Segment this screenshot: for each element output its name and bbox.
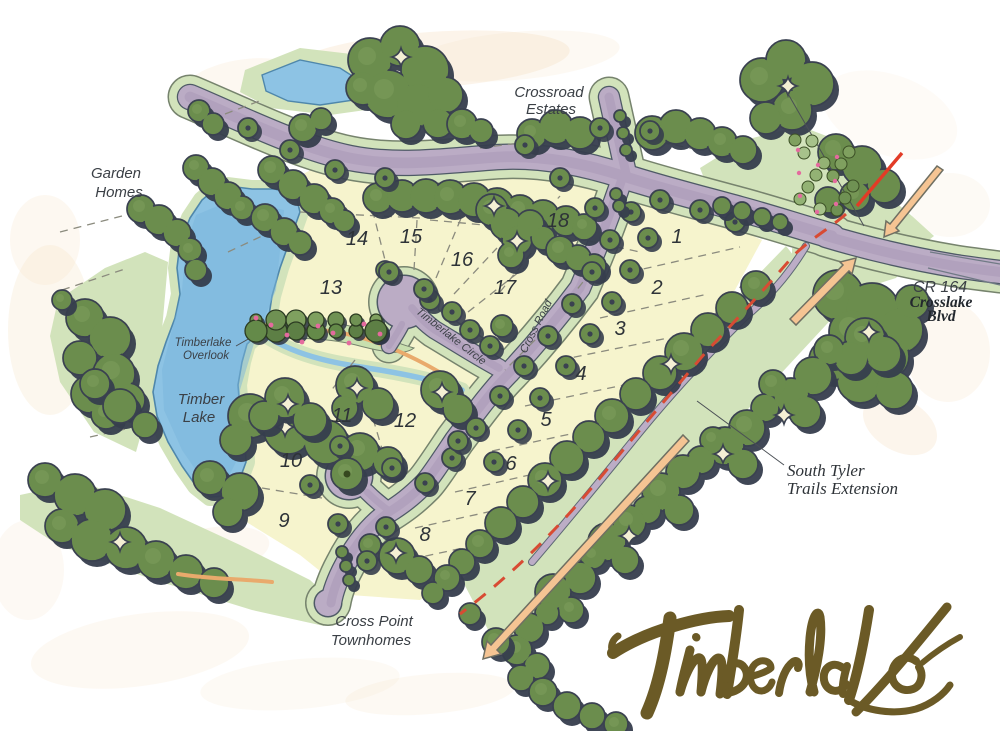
- svg-text:Blvd: Blvd: [925, 308, 956, 325]
- svg-text:2: 2: [650, 277, 662, 299]
- svg-text:Trails Extension: Trails Extension: [787, 479, 898, 498]
- svg-text:7: 7: [464, 488, 476, 510]
- svg-text:Timberlake: Timberlake: [175, 337, 232, 349]
- svg-text:8: 8: [419, 524, 430, 546]
- svg-text:3: 3: [614, 318, 625, 340]
- svg-text:4: 4: [575, 363, 586, 385]
- svg-text:9: 9: [278, 510, 289, 532]
- svg-text:6: 6: [505, 453, 517, 475]
- svg-text:Lake: Lake: [183, 409, 216, 426]
- svg-text:17: 17: [494, 277, 517, 299]
- svg-text:Estates: Estates: [526, 101, 577, 118]
- svg-text:1: 1: [671, 226, 682, 248]
- svg-text:Townhomes: Townhomes: [331, 632, 412, 649]
- svg-text:Overlook: Overlook: [183, 350, 230, 362]
- svg-text:Timber: Timber: [178, 391, 226, 408]
- svg-text:18: 18: [547, 210, 569, 232]
- svg-text:Crossroad: Crossroad: [514, 84, 584, 101]
- svg-text:14: 14: [346, 228, 368, 250]
- svg-text:15: 15: [400, 226, 423, 248]
- svg-text:5: 5: [540, 409, 552, 431]
- svg-text:South Tyler: South Tyler: [787, 461, 865, 480]
- svg-text:Cross Point: Cross Point: [335, 613, 413, 630]
- svg-text:12: 12: [394, 410, 416, 432]
- svg-text:11: 11: [332, 405, 353, 427]
- svg-text:Garden: Garden: [91, 165, 141, 182]
- svg-text:16: 16: [451, 249, 474, 271]
- svg-text:10: 10: [280, 450, 302, 472]
- svg-text:13: 13: [320, 277, 342, 299]
- svg-text:Homes: Homes: [95, 184, 143, 201]
